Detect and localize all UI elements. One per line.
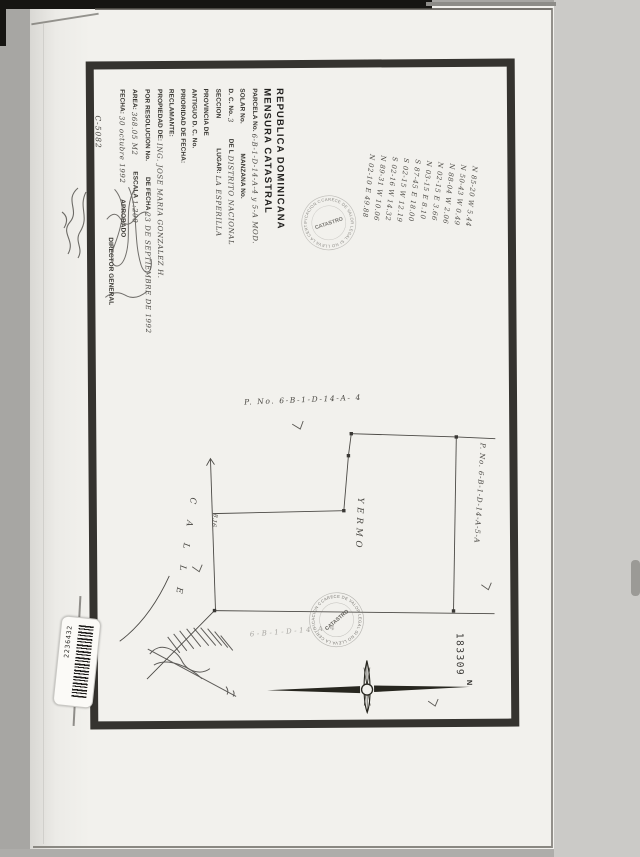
boundary-east	[452, 437, 457, 611]
scanner-margin-right	[554, 0, 640, 857]
compass-rose-icon	[267, 660, 470, 713]
sheet-number: 183309	[454, 633, 465, 676]
scanner-margin-bottom	[0, 849, 554, 857]
office-stamp: CARECE DE VALOR LEGAL SI NO LLEVA LA CER…	[303, 587, 369, 653]
parcel-drawing	[94, 67, 512, 722]
scanner-edge-left	[0, 0, 6, 46]
boundary-north	[351, 433, 495, 440]
paper-edge-left	[43, 24, 44, 844]
paper-edge-right	[551, 8, 553, 848]
scanner-edge-top-light	[426, 2, 556, 6]
scanned-cadastral-survey: REPUBLICA DOMINICANA MENSURA CATASTRAL P…	[0, 0, 640, 857]
barcode-icon	[71, 625, 93, 698]
corner-signature-scribble	[148, 627, 236, 697]
stamp-center-text: CATASTRO	[324, 609, 350, 632]
street-line-west	[210, 459, 215, 611]
approval-signature-scribble	[105, 187, 152, 298]
barcode-number: 2236432	[62, 625, 73, 659]
boundary-mid	[213, 511, 344, 514]
paper-edge-bottom	[33, 846, 552, 848]
stamp-center-text: CATASTRO	[314, 216, 344, 231]
office-stamp: CARECE DE VALOR LEGAL SI NO LLEVA LA CER…	[296, 190, 362, 256]
north-label: N	[465, 680, 474, 685]
street-diagonal	[147, 611, 215, 679]
boundary-jog	[343, 434, 352, 511]
paper-edge-top	[95, 8, 552, 10]
plat-frame: REPUBLICA DOMINICANA MENSURA CATASTRAL P…	[86, 59, 520, 730]
check-marks	[191, 420, 492, 708]
street-corner-curve	[119, 576, 169, 641]
scan-smudge	[631, 560, 640, 596]
